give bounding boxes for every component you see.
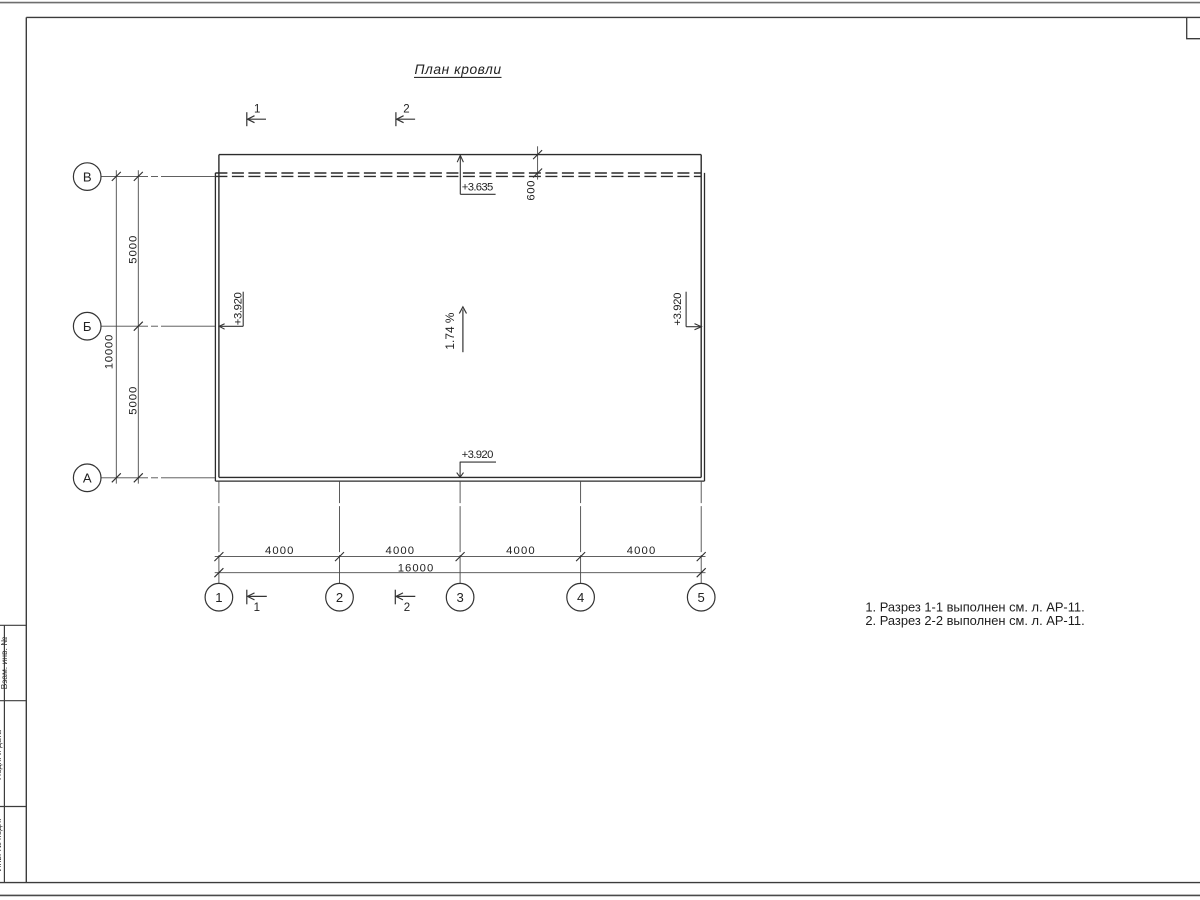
svg-text:600: 600 [526,181,538,201]
svg-text:2: 2 [336,590,343,605]
svg-text:Б: Б [83,319,92,334]
svg-text:1: 1 [254,602,260,614]
svg-text:Взам. инв. №: Взам. инв. № [0,637,9,690]
svg-text:2: 2 [404,602,410,614]
svg-text:А: А [83,471,92,486]
svg-text:5000: 5000 [127,236,139,264]
svg-text:3: 3 [456,590,463,605]
svg-text:4000: 4000 [265,545,294,557]
svg-text:1.74 %: 1.74 % [443,312,457,350]
svg-text:5: 5 [698,590,705,605]
svg-text:4000: 4000 [627,545,656,557]
svg-text:1: 1 [254,104,260,116]
svg-text:В: В [83,169,92,184]
svg-text:4000: 4000 [386,545,415,557]
svg-text:4000: 4000 [506,545,535,557]
svg-text:+3.920: +3.920 [233,292,245,325]
svg-text:2: 2 [403,104,409,116]
svg-text:Инв. № подл.: Инв. № подл. [0,819,3,872]
svg-text:+3.920: +3.920 [462,449,494,461]
svg-text:2. Разрез 2-2 выполнен см. л.: 2. Разрез 2-2 выполнен см. л. АР-11. [865,613,1084,628]
svg-text:План кровли: План кровли [415,62,502,77]
svg-text:4: 4 [577,590,584,605]
svg-text:10000: 10000 [104,335,116,370]
svg-text:+3.920: +3.920 [672,293,684,326]
svg-text:5000: 5000 [127,387,139,415]
svg-text:Подп. и дата: Подп. и дата [0,730,3,780]
svg-text:16000: 16000 [398,563,434,575]
svg-text:1: 1 [215,590,222,605]
svg-text:+3.635: +3.635 [462,181,494,193]
